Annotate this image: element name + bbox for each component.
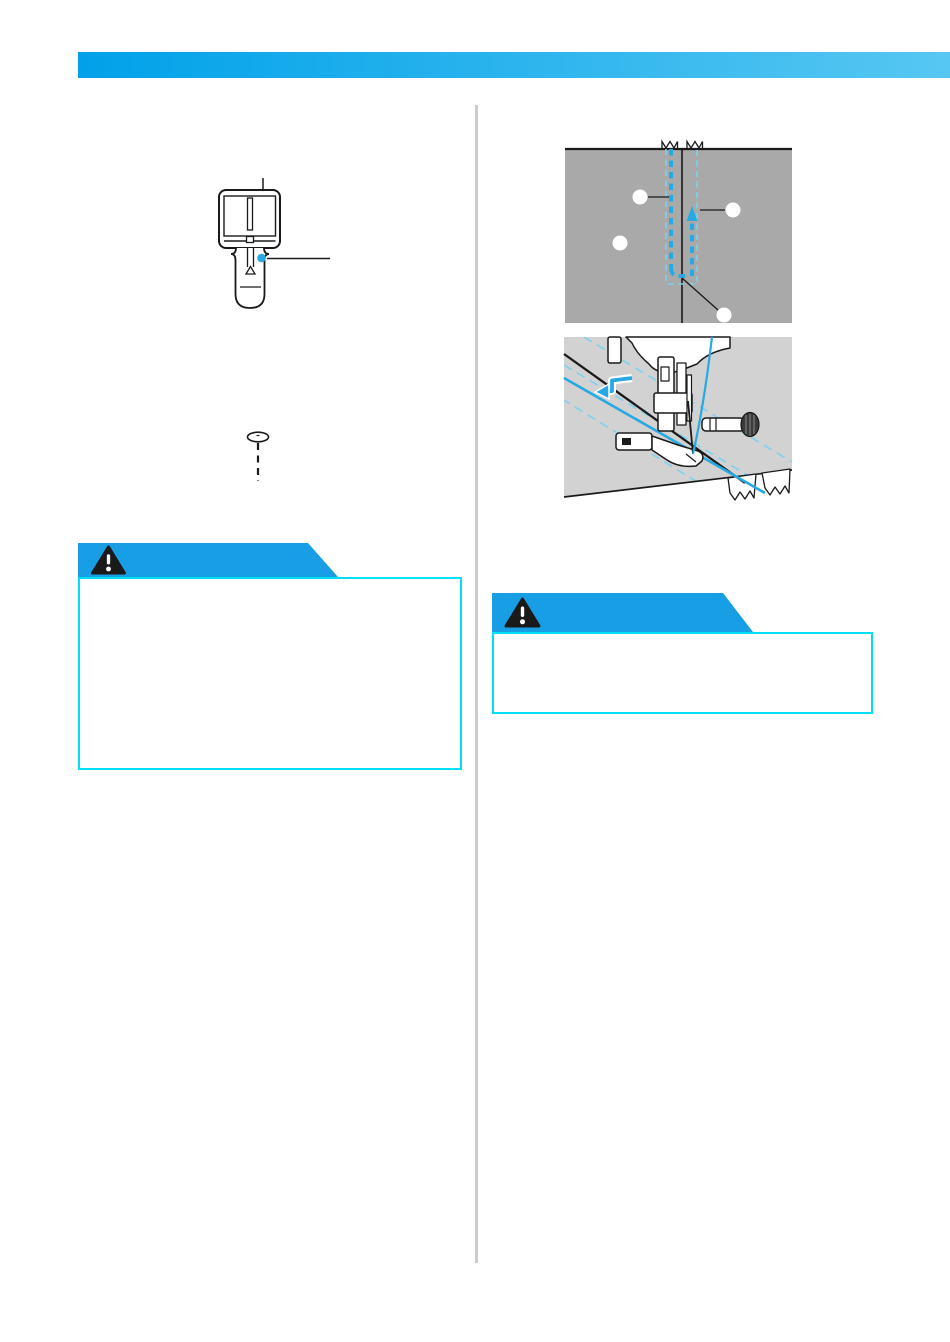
caution-box: [78, 577, 462, 770]
foot-holder-bracket: [654, 393, 692, 413]
zipper-tape-tail: [728, 474, 756, 500]
caution-box: [492, 632, 873, 714]
basting-stitch-diagram: [560, 138, 800, 328]
zipper-foot-heel: [616, 433, 652, 450]
zigzag-notch-icon: [662, 142, 678, 149]
zipper-sewing-illustration: [560, 335, 800, 505]
caution-banner: [492, 593, 753, 632]
pin-figure: [238, 428, 278, 488]
callout-circle: [633, 190, 648, 205]
foot-notch: [247, 237, 254, 243]
exclamation-dot: [520, 619, 525, 624]
exclamation-dot: [106, 567, 111, 572]
zigzag-notch-icon: [687, 142, 703, 149]
foot-heel-slot: [622, 438, 631, 445]
fabric-area: [565, 149, 792, 323]
thumb-screw-shaft: [702, 418, 744, 431]
manual-page: [0, 0, 950, 1342]
pin-icon: [238, 428, 278, 488]
exclamation-bar: [521, 607, 524, 618]
zipper-tape-tail: [762, 469, 790, 495]
presser-foot-top-view-figure: [190, 170, 340, 320]
exclamation-bar: [107, 554, 110, 564]
callout-circle: [613, 236, 628, 251]
presser-foot-top-view-drawing: [190, 170, 340, 320]
basting-diagram-drawing: [560, 138, 800, 328]
sewing-illustration-drawing: [560, 335, 800, 505]
caution-banner: [78, 543, 338, 577]
column-divider: [475, 105, 478, 1263]
pin-position-dot: [257, 254, 266, 263]
warning-triangle-icon: [90, 545, 127, 575]
callout-circle: [717, 308, 732, 323]
chapter-header-bar: [78, 52, 950, 78]
warning-triangle-icon: [504, 597, 541, 628]
machine-arm-side: [608, 337, 621, 363]
pin-head: [248, 432, 269, 442]
callout-circle: [726, 203, 741, 218]
